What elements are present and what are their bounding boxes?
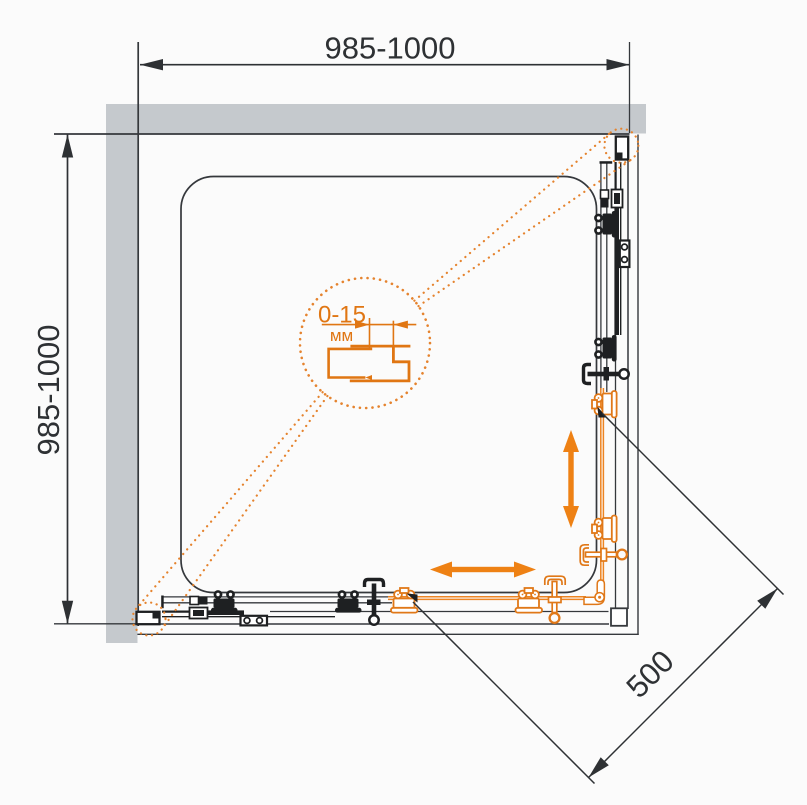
svg-text:985-1000: 985-1000 bbox=[31, 324, 66, 455]
svg-text:мм: мм bbox=[330, 326, 353, 345]
svg-text:985-1000: 985-1000 bbox=[324, 31, 455, 66]
